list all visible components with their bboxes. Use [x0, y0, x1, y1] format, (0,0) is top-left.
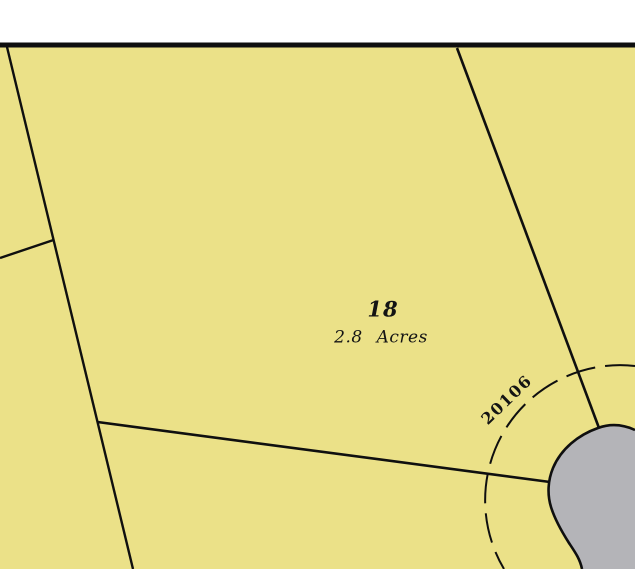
parcel-map-svg — [0, 0, 635, 569]
plat-map[interactable]: 18 2.8 Acres 20106 — [0, 0, 635, 569]
parcel-fill-area — [0, 46, 635, 569]
lot-area-label: 2.8 Acres — [334, 330, 428, 347]
lot-number-label: 18 — [367, 299, 398, 320]
north-border-line — [0, 43, 635, 48]
